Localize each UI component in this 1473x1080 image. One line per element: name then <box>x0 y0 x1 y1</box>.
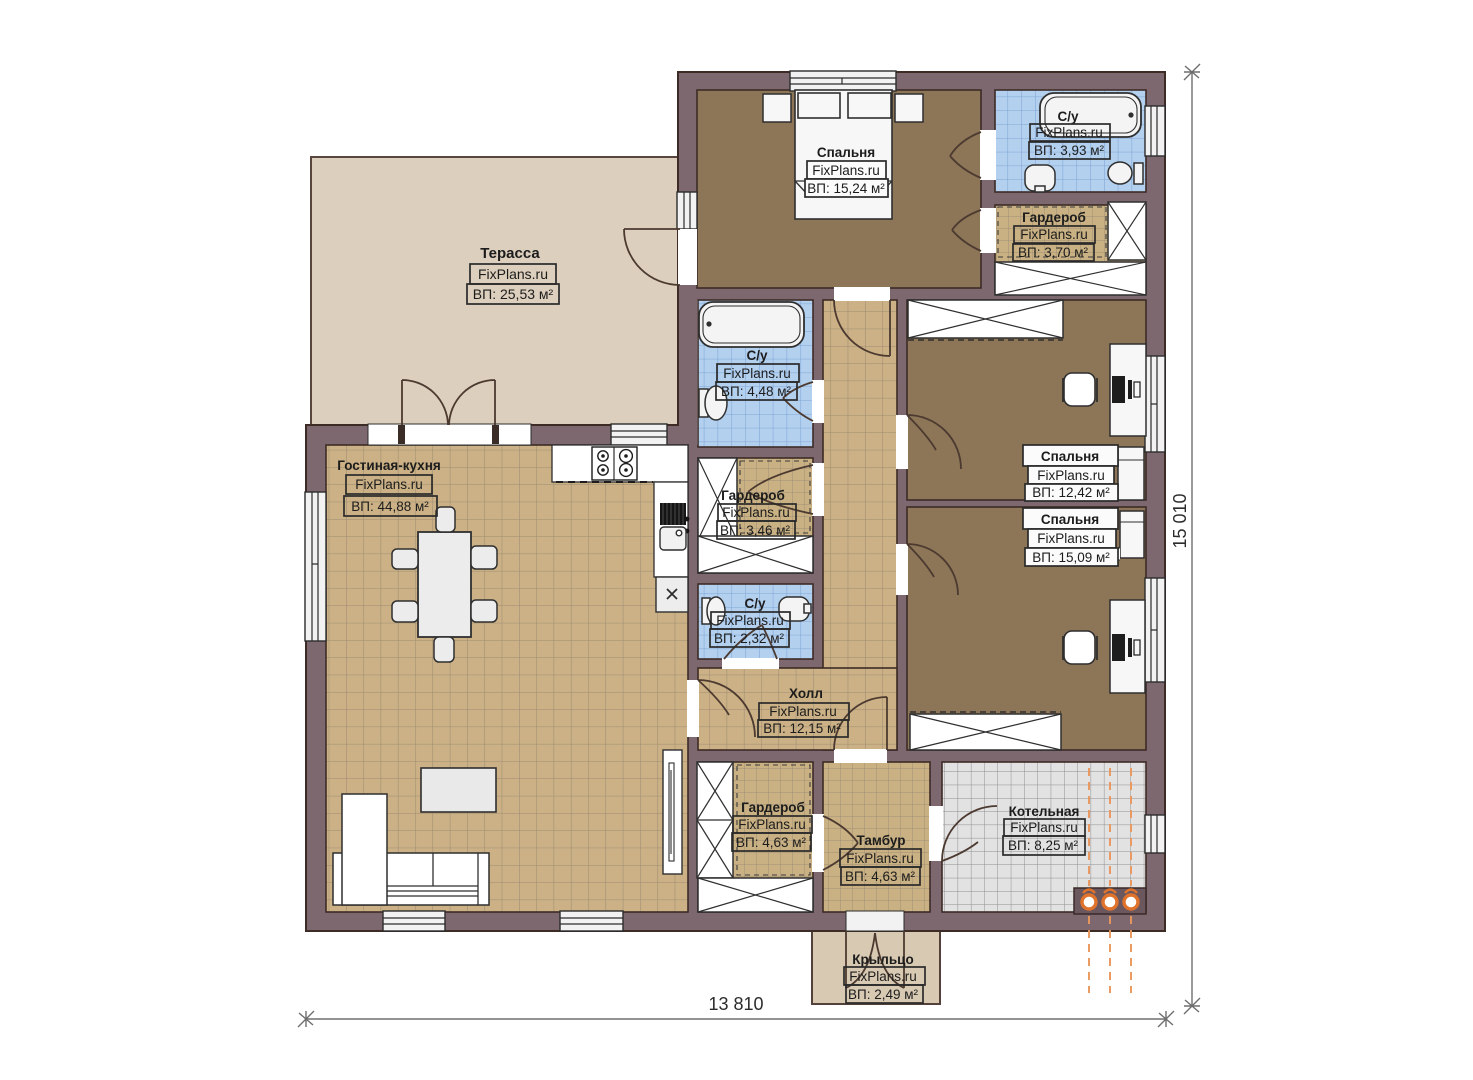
svg-text:FixPlans.ru: FixPlans.ru <box>478 266 548 282</box>
svg-text:Гардероб: Гардероб <box>741 800 805 815</box>
svg-text:ВП: 3,70 м²: ВП: 3,70 м² <box>1018 245 1089 260</box>
svg-text:FixPlans.ru: FixPlans.ru <box>355 477 423 492</box>
svg-text:FixPlans.ru: FixPlans.ru <box>1037 468 1105 483</box>
svg-text:Гардероб: Гардероб <box>721 488 785 503</box>
svg-text:ВП: 2,32 м²: ВП: 2,32 м² <box>714 631 785 646</box>
svg-text:ВП: 3,93 м²: ВП: 3,93 м² <box>1034 143 1105 158</box>
svg-text:FixPlans.ru: FixPlans.ru <box>812 163 880 178</box>
svg-text:Спальня: Спальня <box>1041 512 1099 527</box>
svg-text:FixPlans.ru: FixPlans.ru <box>769 704 837 719</box>
svg-text:Гостиная-кухня: Гостиная-кухня <box>337 458 440 473</box>
svg-text:13 810: 13 810 <box>708 994 763 1014</box>
svg-text:ВП: 4,63 м²: ВП: 4,63 м² <box>845 869 916 884</box>
svg-text:Гардероб: Гардероб <box>1022 210 1086 225</box>
svg-text:Спальня: Спальня <box>1041 449 1099 464</box>
svg-text:FixPlans.ru: FixPlans.ru <box>1035 125 1103 140</box>
svg-text:ВП: 25,53 м²: ВП: 25,53 м² <box>473 286 554 302</box>
svg-text:С/у: С/у <box>746 348 768 363</box>
svg-text:15 010: 15 010 <box>1170 493 1190 548</box>
svg-text:ВП: 2,49 м²: ВП: 2,49 м² <box>848 987 919 1002</box>
svg-text:С/у: С/у <box>744 596 766 611</box>
svg-text:Котельная: Котельная <box>1009 804 1080 819</box>
svg-text:FixPlans.ru: FixPlans.ru <box>716 613 784 628</box>
svg-text:FixPlans.ru: FixPlans.ru <box>722 505 790 520</box>
svg-text:ВП: 12,42 м²: ВП: 12,42 м² <box>1032 485 1110 500</box>
svg-text:ВП: 8,25 м²: ВП: 8,25 м² <box>1008 838 1079 853</box>
svg-text:Спальня: Спальня <box>817 145 875 160</box>
svg-text:FixPlans.ru: FixPlans.ru <box>1010 820 1078 835</box>
svg-text:FixPlans.ru: FixPlans.ru <box>849 969 917 984</box>
svg-text:FixPlans.ru: FixPlans.ru <box>846 851 914 866</box>
svg-text:ВП: 4,48 м²: ВП: 4,48 м² <box>721 384 792 399</box>
svg-text:Терасса: Терасса <box>480 245 540 262</box>
svg-text:FixPlans.ru: FixPlans.ru <box>1020 227 1088 242</box>
svg-text:С/у: С/у <box>1057 109 1079 124</box>
svg-text:Крыльцо: Крыльцо <box>852 952 913 967</box>
svg-text:FixPlans.ru: FixPlans.ru <box>738 817 806 832</box>
svg-text:ВП: 44,88 м²: ВП: 44,88 м² <box>351 499 429 514</box>
svg-text:FixPlans.ru: FixPlans.ru <box>723 366 791 381</box>
svg-text:Тамбур: Тамбур <box>857 833 906 848</box>
svg-text:ВП: 3,46 м²: ВП: 3,46 м² <box>720 523 791 538</box>
svg-text:ВП: 15,24 м²: ВП: 15,24 м² <box>807 181 885 196</box>
svg-text:ВП: 4,63 м²: ВП: 4,63 м² <box>736 835 807 850</box>
svg-text:ВП: 12,15 м²: ВП: 12,15 м² <box>763 721 841 736</box>
svg-text:ВП: 15,09 м²: ВП: 15,09 м² <box>1032 550 1110 565</box>
svg-text:FixPlans.ru: FixPlans.ru <box>1037 531 1105 546</box>
svg-text:Холл: Холл <box>789 686 823 701</box>
